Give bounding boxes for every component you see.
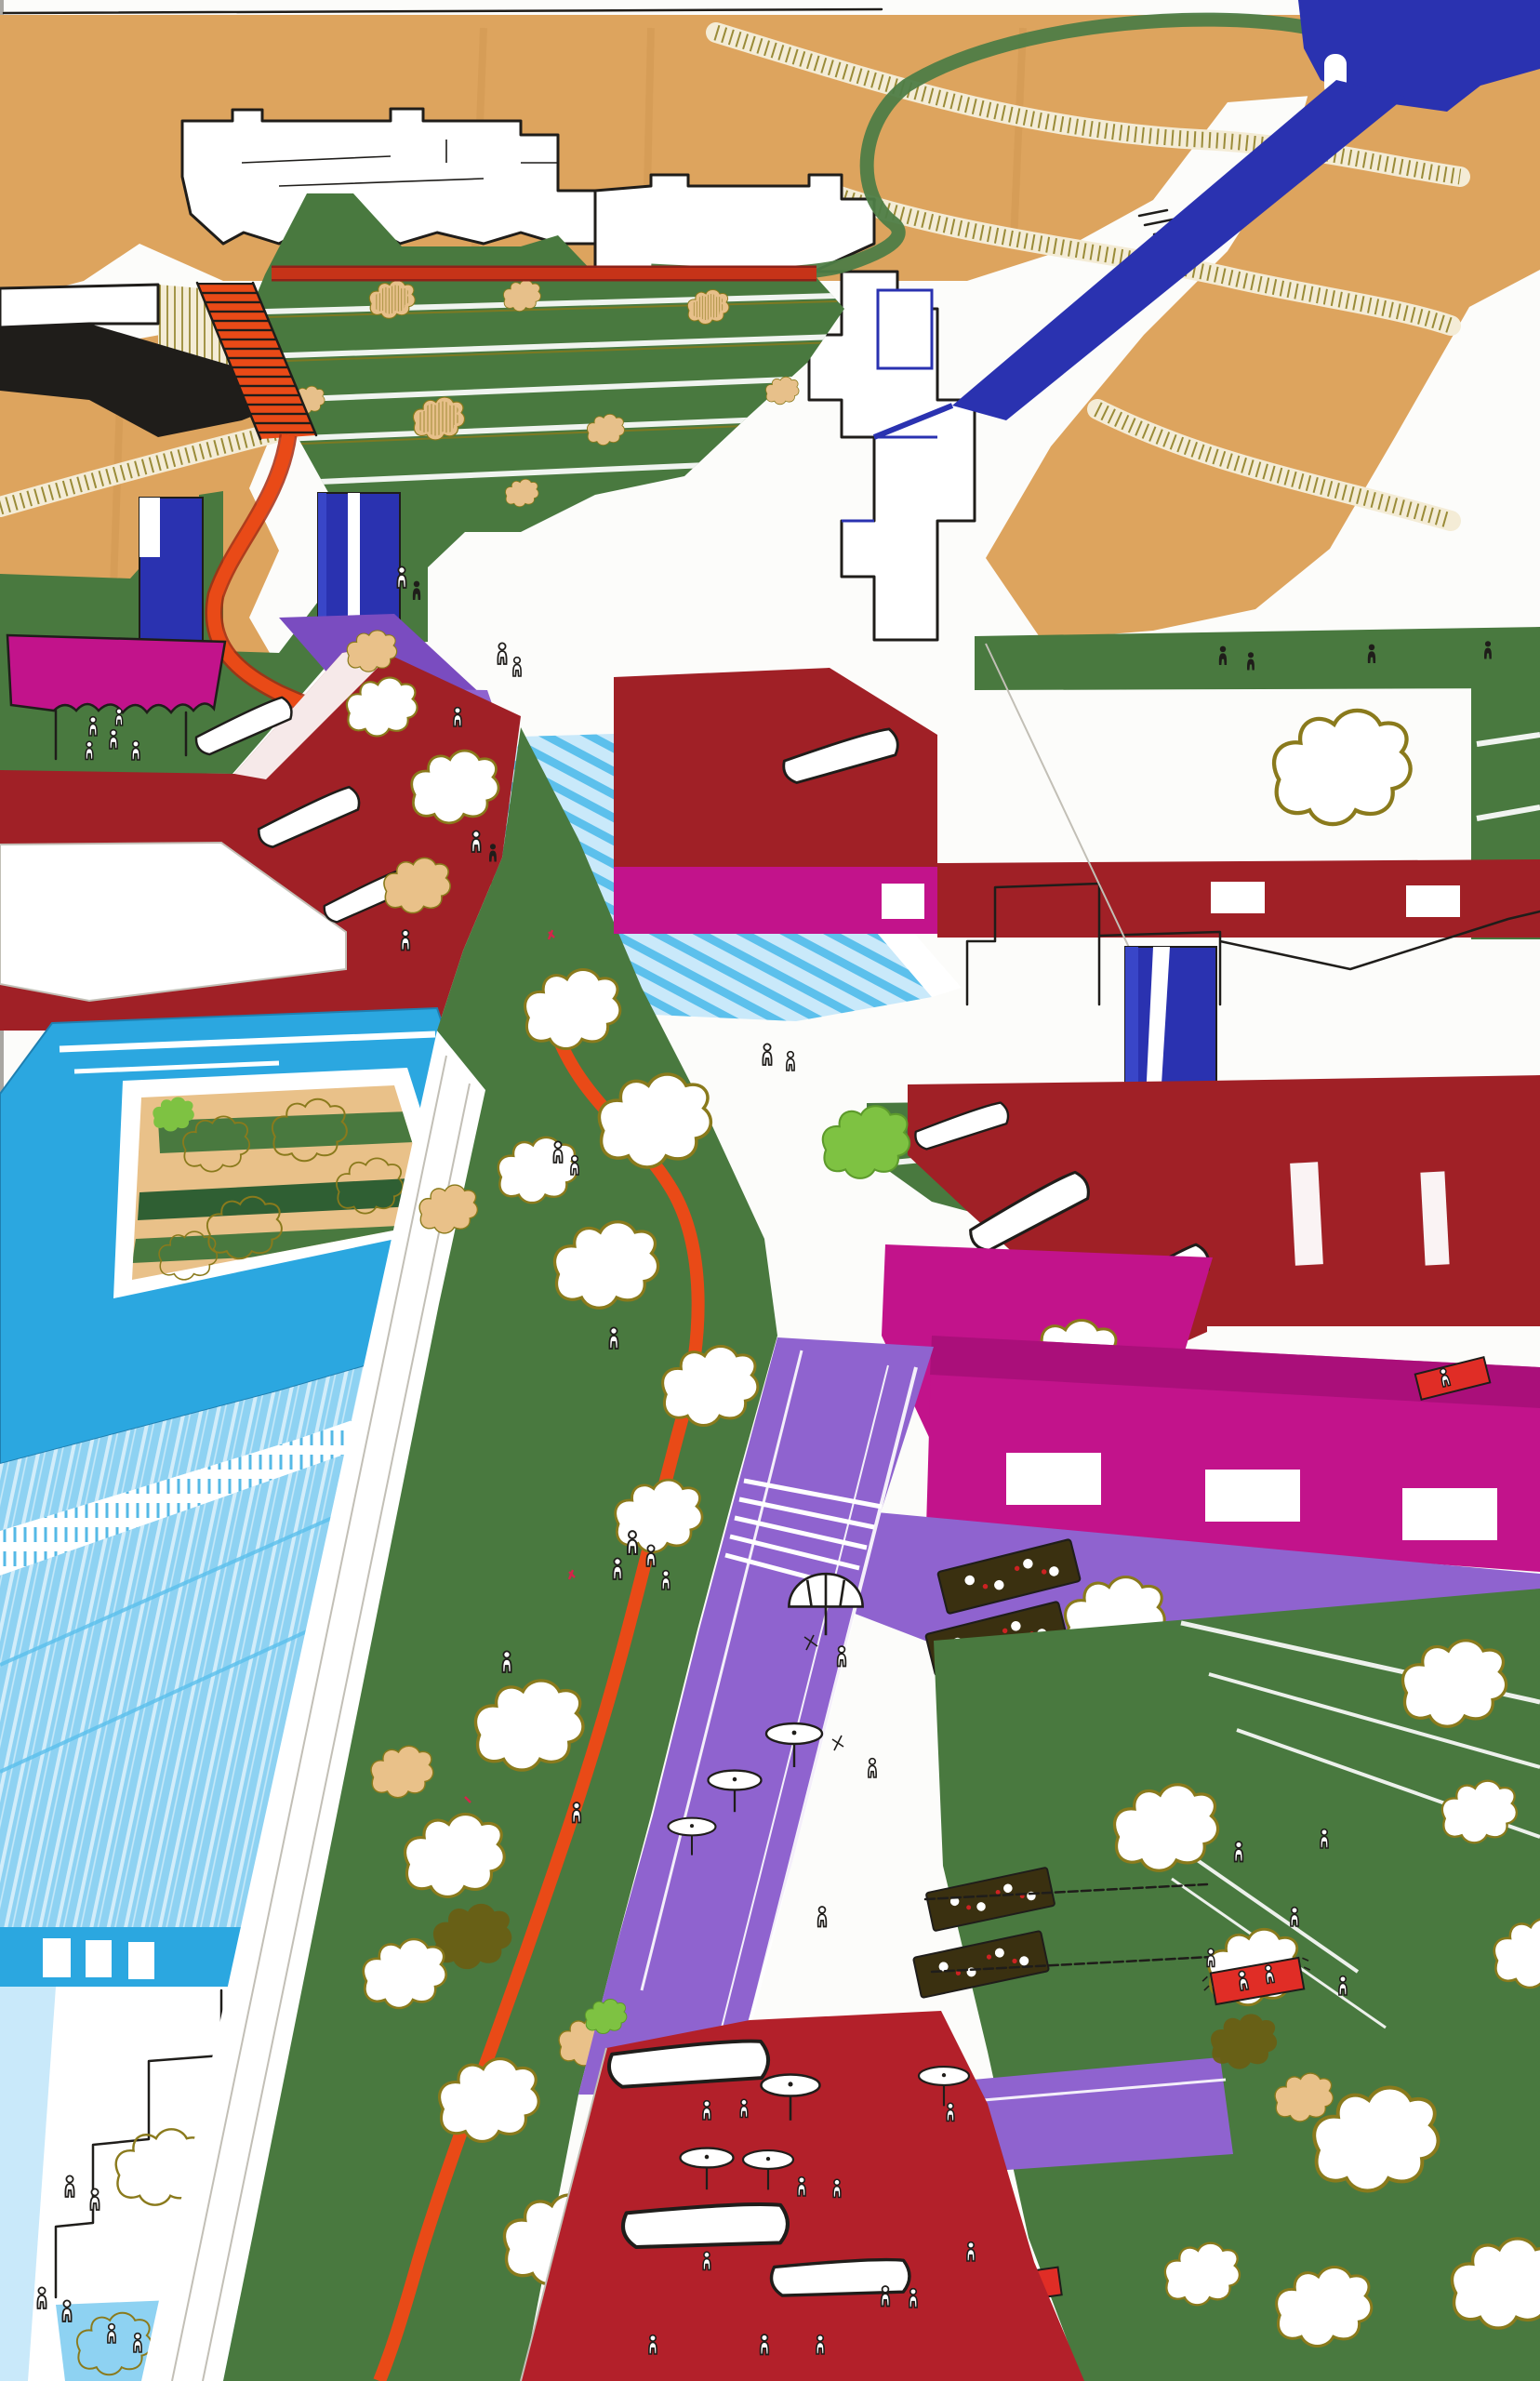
band-slit — [1211, 882, 1265, 913]
facade-window — [1205, 1470, 1300, 1522]
wing-slit — [1290, 1162, 1323, 1265]
tower-a-notch — [139, 498, 160, 557]
tower-c-facet — [1125, 947, 1138, 1099]
building-cluster-right — [595, 175, 874, 272]
urban-masterplan-sketch: Hand-drawn marker and ink aerial perspec… — [0, 0, 1540, 2381]
facade-window — [1006, 1453, 1101, 1505]
tower-c — [1125, 947, 1216, 1099]
band-slit — [1406, 885, 1460, 917]
blue-outline-box — [878, 290, 932, 368]
front-slit — [43, 1938, 71, 1977]
strip-window — [882, 884, 924, 919]
tower-b — [318, 493, 400, 629]
white-slab — [0, 285, 158, 327]
tower-b-slit — [348, 493, 360, 629]
front-slit — [86, 1940, 112, 1977]
tower-a — [139, 498, 203, 646]
green-band-top — [975, 627, 1540, 690]
wing-slit — [1420, 1171, 1449, 1265]
sketch-page: Hand-drawn marker and ink aerial perspec… — [0, 0, 1540, 2381]
red-roof-wing — [1207, 1075, 1540, 1326]
tower-b-facet — [318, 493, 326, 629]
canopy-roof — [7, 635, 225, 712]
front-slit — [128, 1942, 154, 1979]
facade-window — [1402, 1488, 1497, 1540]
